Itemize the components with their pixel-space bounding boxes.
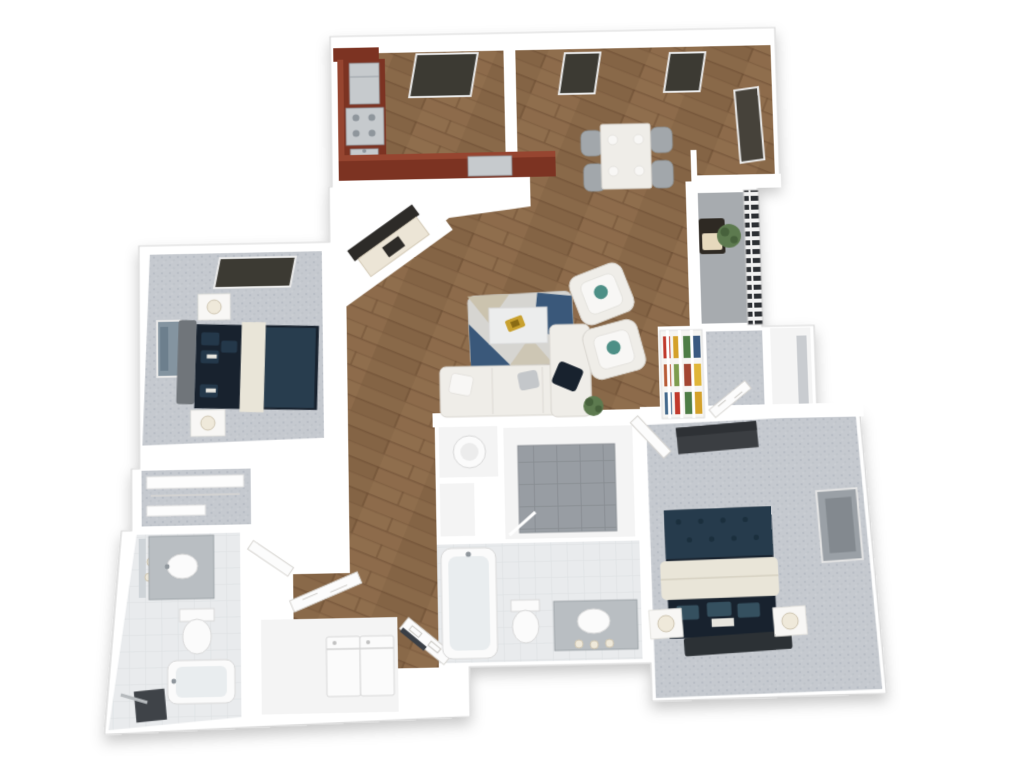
dining-side-door	[734, 87, 764, 163]
place-setting-icon	[633, 134, 643, 144]
dining-window-2	[663, 52, 707, 92]
toilet-bowl	[512, 610, 539, 643]
vanity-sink	[167, 554, 198, 579]
dining-right-floor	[693, 45, 775, 181]
refrigerator	[349, 63, 379, 104]
vanity-knob	[575, 640, 583, 648]
bed-pillow	[737, 603, 760, 618]
sofa-gray-pillow	[517, 369, 540, 391]
sofa-throw-pillow	[448, 373, 474, 397]
book-spine	[693, 336, 701, 358]
linen-closet	[453, 435, 486, 468]
balcony-floor	[694, 192, 750, 324]
bed-pillow	[707, 602, 732, 617]
wall-art-detail	[160, 327, 168, 371]
shower-tile-floor	[518, 444, 617, 533]
washer	[326, 636, 360, 696]
closet-shelf	[147, 505, 206, 516]
bookshelf	[660, 330, 705, 419]
kitchen-window	[408, 53, 478, 97]
table-lamp	[658, 615, 675, 632]
small-closet-floor	[440, 483, 475, 536]
bed-runner	[239, 322, 266, 412]
dining-chair	[651, 160, 674, 188]
toilet-bowl	[183, 619, 212, 654]
table-lamp	[207, 300, 221, 314]
dark-floor-mat	[134, 689, 167, 723]
vanity-mirror	[139, 539, 146, 598]
master-bathtub	[441, 548, 498, 660]
book-spine	[685, 392, 693, 414]
range	[346, 107, 384, 145]
place-setting-icon	[634, 166, 644, 176]
pillow-trim	[711, 618, 734, 627]
place-setting-icon	[608, 166, 618, 176]
bed-pillow	[221, 341, 237, 353]
pillow-trim	[207, 354, 217, 358]
hallway-floor-upper	[348, 419, 437, 575]
dining-window-1	[558, 52, 602, 94]
table-lamp	[201, 416, 215, 430]
vanity-knob	[605, 639, 613, 647]
dining-chair	[650, 127, 673, 153]
dryer	[360, 636, 394, 696]
bedroom2-window	[214, 257, 296, 288]
floor-plan-svg	[0, 0, 1024, 768]
book-spine	[694, 364, 702, 386]
balcony-top-wall	[691, 174, 781, 190]
bathtub	[168, 659, 236, 704]
vanity-knob	[590, 640, 598, 648]
vanity-sink	[577, 608, 610, 633]
bedroom2-bed	[176, 320, 319, 413]
table-lamp	[782, 613, 799, 630]
dishwasher	[468, 156, 512, 177]
dining-chair	[581, 130, 603, 156]
floor-plan-scene	[0, 0, 1024, 768]
pillow-trim	[206, 388, 216, 392]
book-spine	[695, 392, 703, 414]
refrigerator-handle	[349, 76, 379, 77]
laundry-closet	[326, 636, 394, 697]
niche-inner	[825, 497, 856, 554]
book-spine	[683, 336, 691, 358]
book-spine	[684, 364, 692, 386]
closet-shelf	[147, 475, 244, 489]
place-setting-icon	[608, 135, 618, 145]
master-closet-floor	[704, 330, 765, 415]
master-vanity	[554, 600, 639, 651]
walk-in-shower	[508, 444, 617, 535]
dining-table	[600, 123, 651, 189]
bed-pillow	[201, 332, 219, 345]
